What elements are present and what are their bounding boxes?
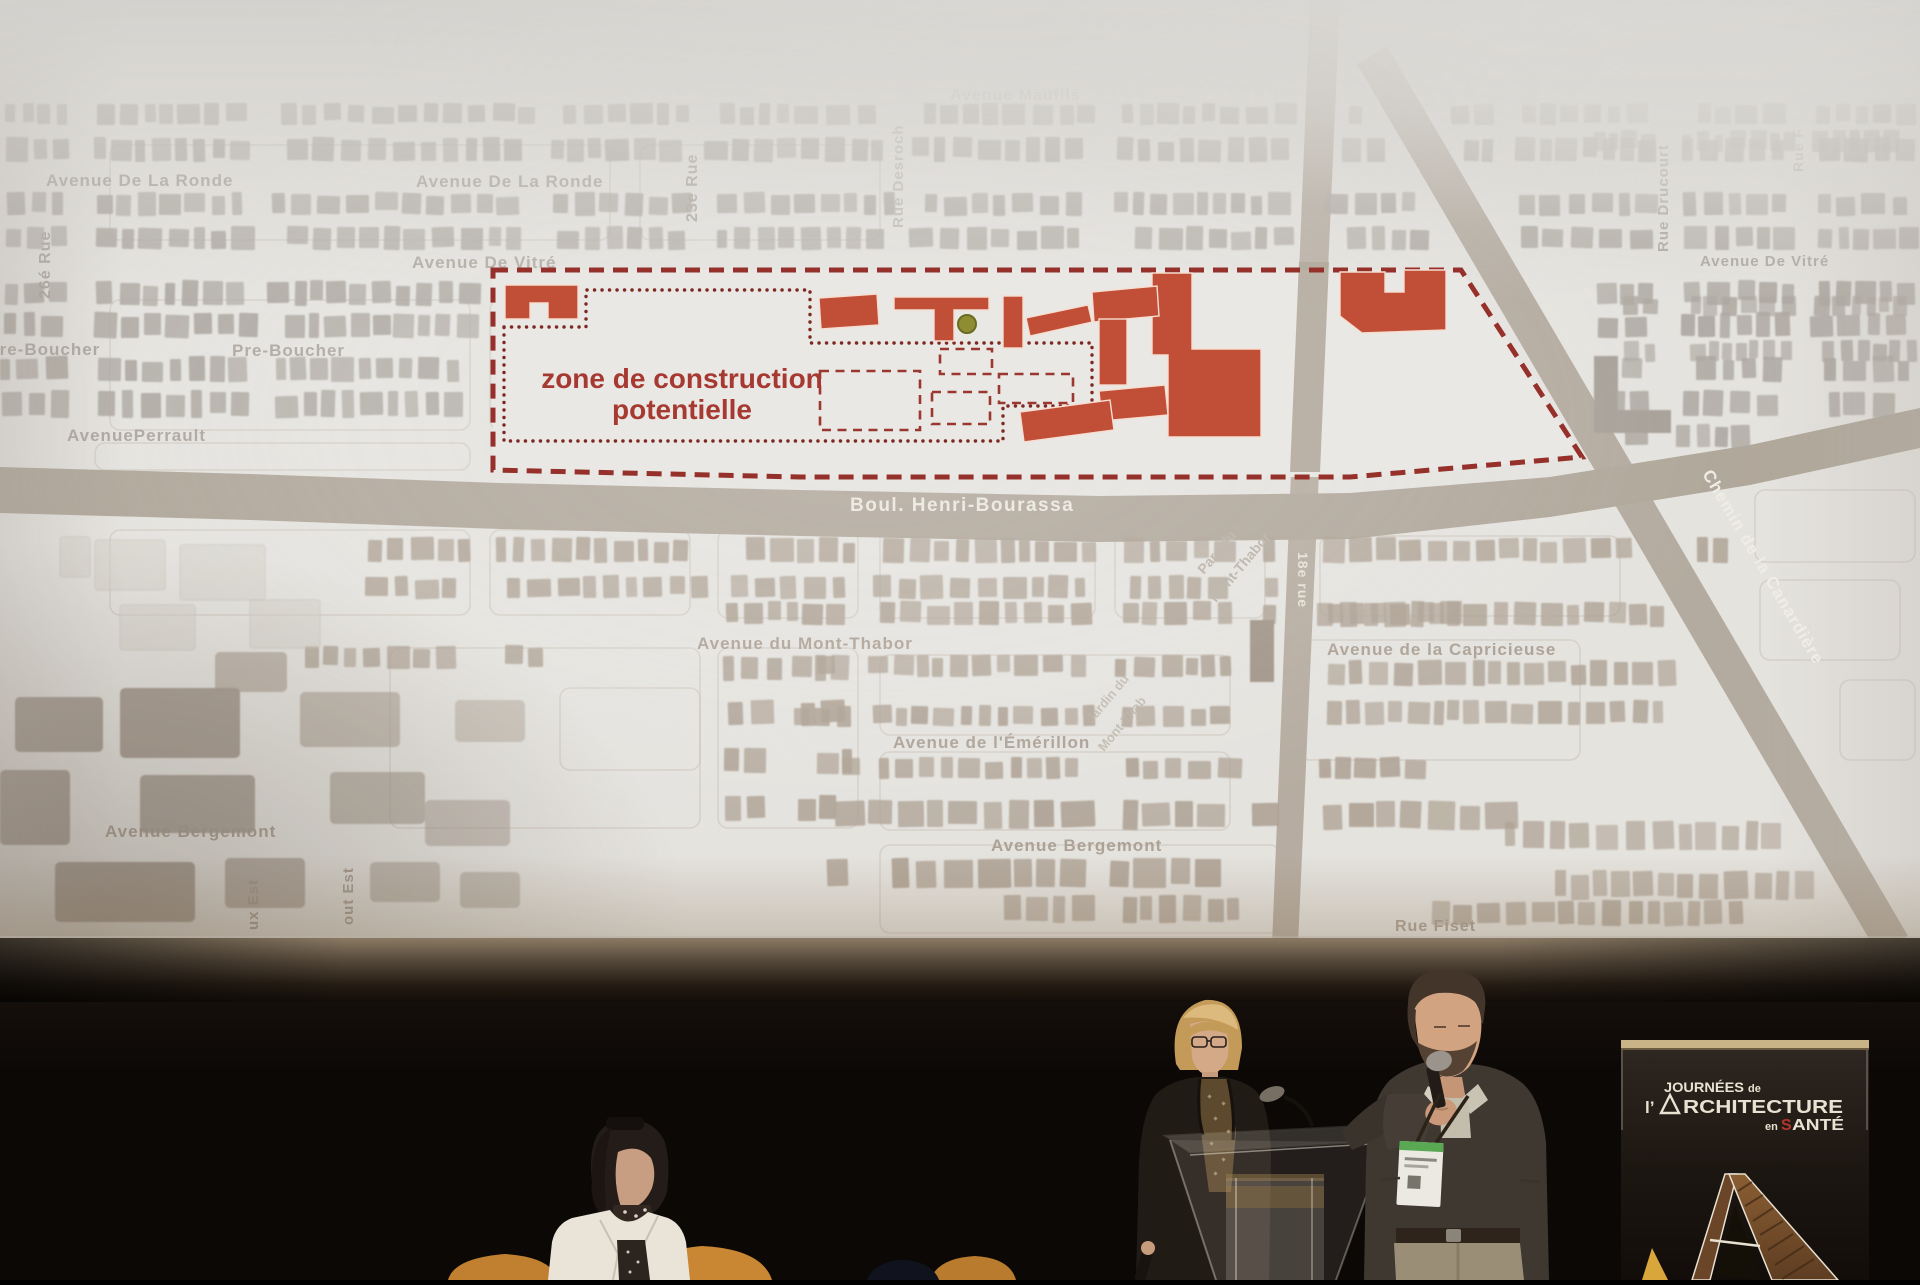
svg-text:S: S xyxy=(1781,1117,1792,1134)
svg-text:ANTÉ: ANTÉ xyxy=(1792,1115,1844,1134)
svg-text:Boul. Henri-Bourassa: Boul. Henri-Bourassa xyxy=(850,495,1074,516)
svg-text:en: en xyxy=(1765,1121,1778,1133)
svg-text:RCHITECTURE: RCHITECTURE xyxy=(1683,1097,1843,1117)
svg-text:potentielle: potentielle xyxy=(612,394,752,425)
svg-text:de: de xyxy=(1748,1083,1761,1095)
svg-text:JOURNÉES: JOURNÉES xyxy=(1664,1079,1744,1095)
svg-text:l’: l’ xyxy=(1645,1098,1654,1117)
svg-text:zone de construction: zone de construction xyxy=(541,363,823,394)
svg-text:18e rue: 18e rue xyxy=(1295,552,1311,608)
